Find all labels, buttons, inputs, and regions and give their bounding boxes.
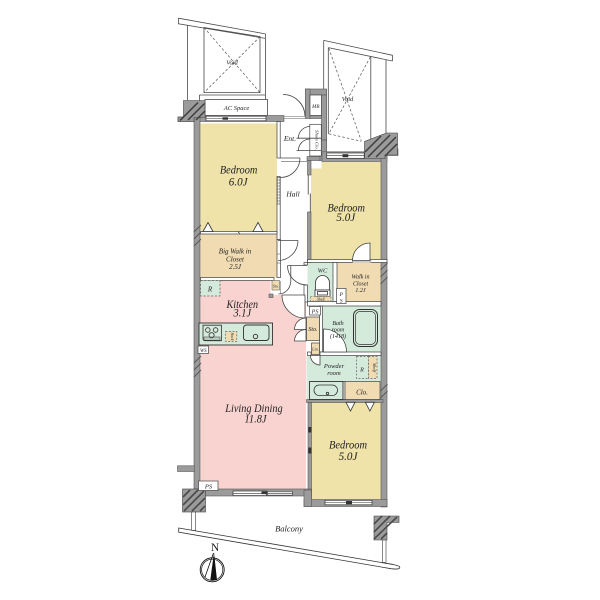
- svg-text:Void: Void: [226, 60, 238, 67]
- svg-text:P: P: [339, 292, 344, 298]
- svg-text:AC Space: AC Space: [223, 105, 250, 112]
- svg-text:Walk in: Walk in: [352, 275, 370, 281]
- svg-text:Stock: Stock: [230, 333, 234, 341]
- svg-text:3.1J: 3.1J: [233, 306, 252, 320]
- svg-text:R: R: [207, 286, 213, 294]
- svg-text:1.2J: 1.2J: [355, 288, 366, 294]
- svg-text:R: R: [359, 368, 364, 374]
- svg-text:Hall: Hall: [285, 190, 299, 199]
- svg-text:5.0J: 5.0J: [339, 449, 358, 463]
- svg-text:Shelf: Shelf: [372, 363, 377, 373]
- svg-text:Balcony: Balcony: [275, 524, 303, 534]
- svg-text:S: S: [340, 299, 343, 305]
- svg-text:PS: PS: [311, 310, 319, 316]
- svg-text:WS: WS: [200, 349, 207, 354]
- svg-text:Shelf: Shelf: [317, 297, 326, 301]
- svg-text:Powder: Powder: [323, 363, 345, 370]
- svg-text:WC: WC: [318, 268, 328, 275]
- svg-text:Shoes Clo.: Shoes Clo.: [315, 130, 320, 150]
- svg-text:N: N: [211, 542, 220, 554]
- svg-text:Ent.: Ent.: [283, 134, 296, 143]
- svg-text:(1418): (1418): [330, 333, 346, 340]
- svg-text:Sto.: Sto.: [308, 327, 317, 333]
- svg-text:5.0J: 5.0J: [336, 210, 355, 224]
- svg-text:Bath: Bath: [332, 321, 343, 327]
- svg-text:PS: PS: [204, 484, 213, 491]
- svg-text:room: room: [332, 328, 345, 334]
- svg-text:room: room: [327, 370, 341, 377]
- svg-text:MB: MB: [311, 105, 319, 110]
- svg-text:Lin.: Lin.: [311, 347, 319, 352]
- svg-text:Void: Void: [342, 96, 354, 103]
- svg-text:11.8J: 11.8J: [245, 412, 268, 426]
- svg-text:Big Walk in: Big Walk in: [219, 248, 252, 256]
- svg-text:Clo.: Clo.: [356, 389, 368, 397]
- svg-text:2.5J: 2.5J: [229, 263, 242, 271]
- svg-text:Closet: Closet: [353, 282, 369, 288]
- svg-text:Sto.: Sto.: [273, 285, 279, 289]
- svg-text:6.0J: 6.0J: [229, 174, 248, 188]
